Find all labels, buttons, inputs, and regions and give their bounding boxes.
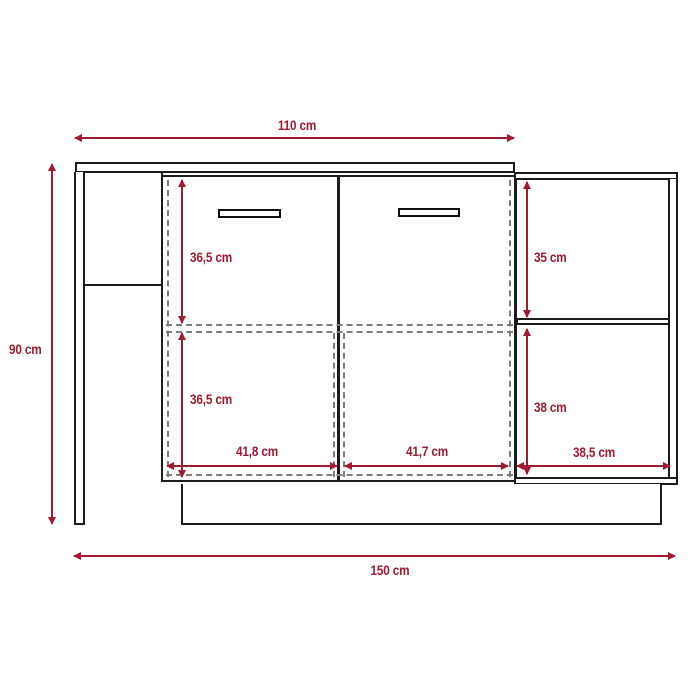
- right-door-width-arrow: [345, 465, 508, 467]
- shelf-unit-middle-shelf: [516, 318, 670, 325]
- side-shelf-width-arrow: [517, 465, 670, 467]
- right-upper-height-arrow: [526, 182, 528, 317]
- left-support-panel: [74, 172, 85, 525]
- left-lower-height-label: 36,5 cm: [190, 391, 232, 407]
- cabinet-right-wall: [514, 173, 517, 482]
- left-upper-height-label: 36,5 cm: [190, 249, 232, 265]
- cabinet-left-wall: [161, 173, 163, 482]
- cabinet-bottom-edge: [161, 480, 517, 482]
- counter-top: [75, 162, 515, 173]
- left-door-handle: [218, 209, 281, 218]
- interior-bottom-face-line: [166, 474, 513, 476]
- interior-right-face-line: [509, 180, 511, 477]
- left-lower-height-arrow: [181, 333, 183, 477]
- counter-width-label: 110 cm: [255, 117, 339, 133]
- left-door-width-arrow: [167, 465, 337, 467]
- shelf-unit-right-wall: [668, 179, 678, 480]
- total-width-label: 150 cm: [348, 562, 432, 578]
- left-door-width-label: 41,8 cm: [215, 443, 299, 459]
- divider-right-face-line: [343, 333, 345, 477]
- dimension-diagram: 110 cm 90 cm 150 cm 36,5 cm 36,5 cm 35 c…: [0, 0, 700, 700]
- counter-width-arrow: [75, 137, 514, 139]
- right-door-handle: [398, 208, 460, 217]
- total-width-arrow: [74, 555, 675, 557]
- total-height-label: 90 cm: [9, 341, 42, 357]
- total-height-arrow: [51, 164, 53, 524]
- left-upper-height-arrow: [181, 180, 183, 323]
- side-shelf-width-label: 38,5 cm: [552, 444, 636, 460]
- right-door-width-label: 41,7 cm: [385, 443, 469, 459]
- right-upper-height-label: 35 cm: [534, 249, 567, 265]
- right-lower-height-arrow: [526, 329, 528, 474]
- hidden-shelf-bottom-line: [166, 331, 513, 333]
- divider-left-face-line: [333, 333, 335, 477]
- hidden-shelf-top-line: [166, 324, 513, 326]
- interior-left-face-line: [167, 180, 169, 477]
- right-lower-height-label: 38 cm: [534, 399, 567, 415]
- left-side-shelf-line: [85, 284, 162, 286]
- plinth-base: [181, 484, 662, 525]
- door-divider: [337, 177, 340, 480]
- shelf-unit-top-slab: [514, 172, 678, 180]
